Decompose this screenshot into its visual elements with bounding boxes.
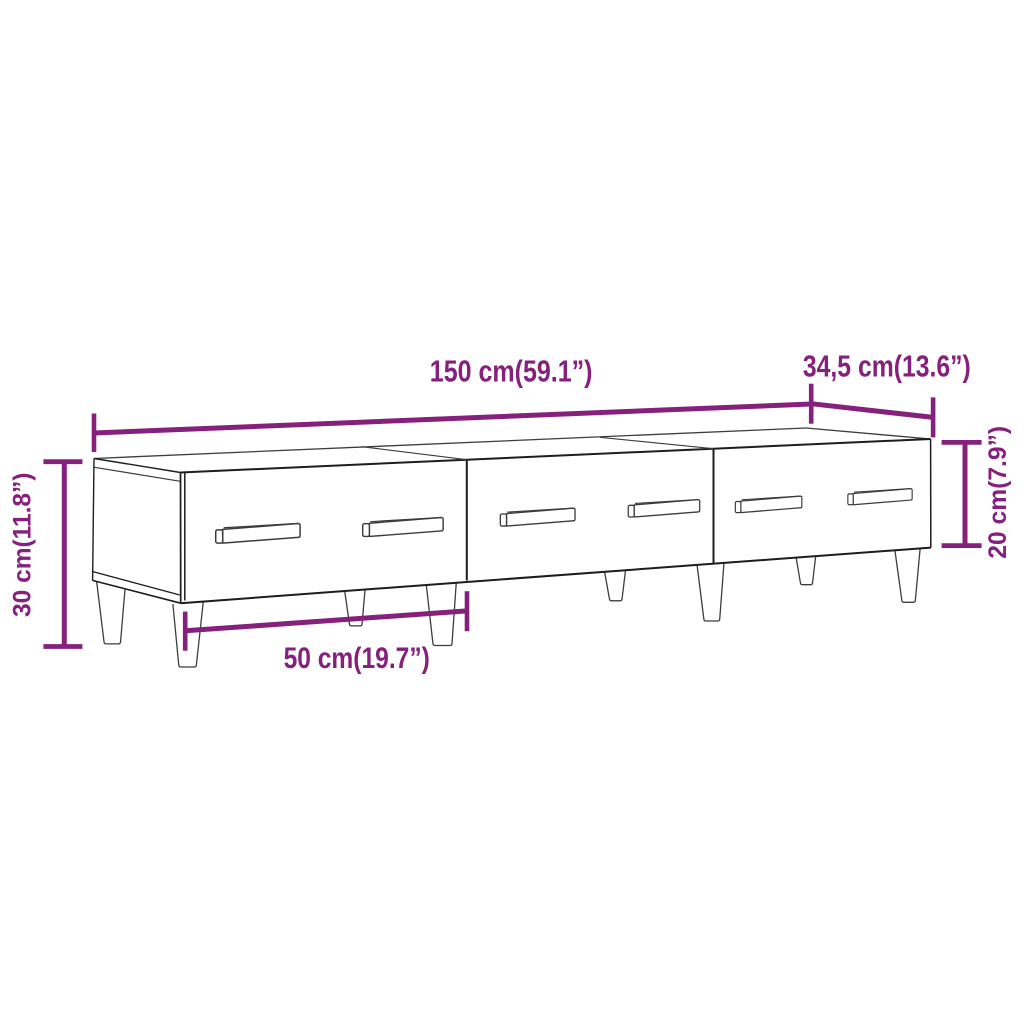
svg-text:20 cm(7.9”): 20 cm(7.9”) [984, 426, 1012, 559]
svg-text:150 cm(59.1”): 150 cm(59.1”) [430, 354, 593, 389]
svg-text:34,5 cm(13.6”): 34,5 cm(13.6”) [803, 348, 971, 383]
svg-text:50 cm(19.7”): 50 cm(19.7”) [284, 642, 430, 675]
svg-text:30 cm(11.8”): 30 cm(11.8”) [8, 473, 36, 618]
